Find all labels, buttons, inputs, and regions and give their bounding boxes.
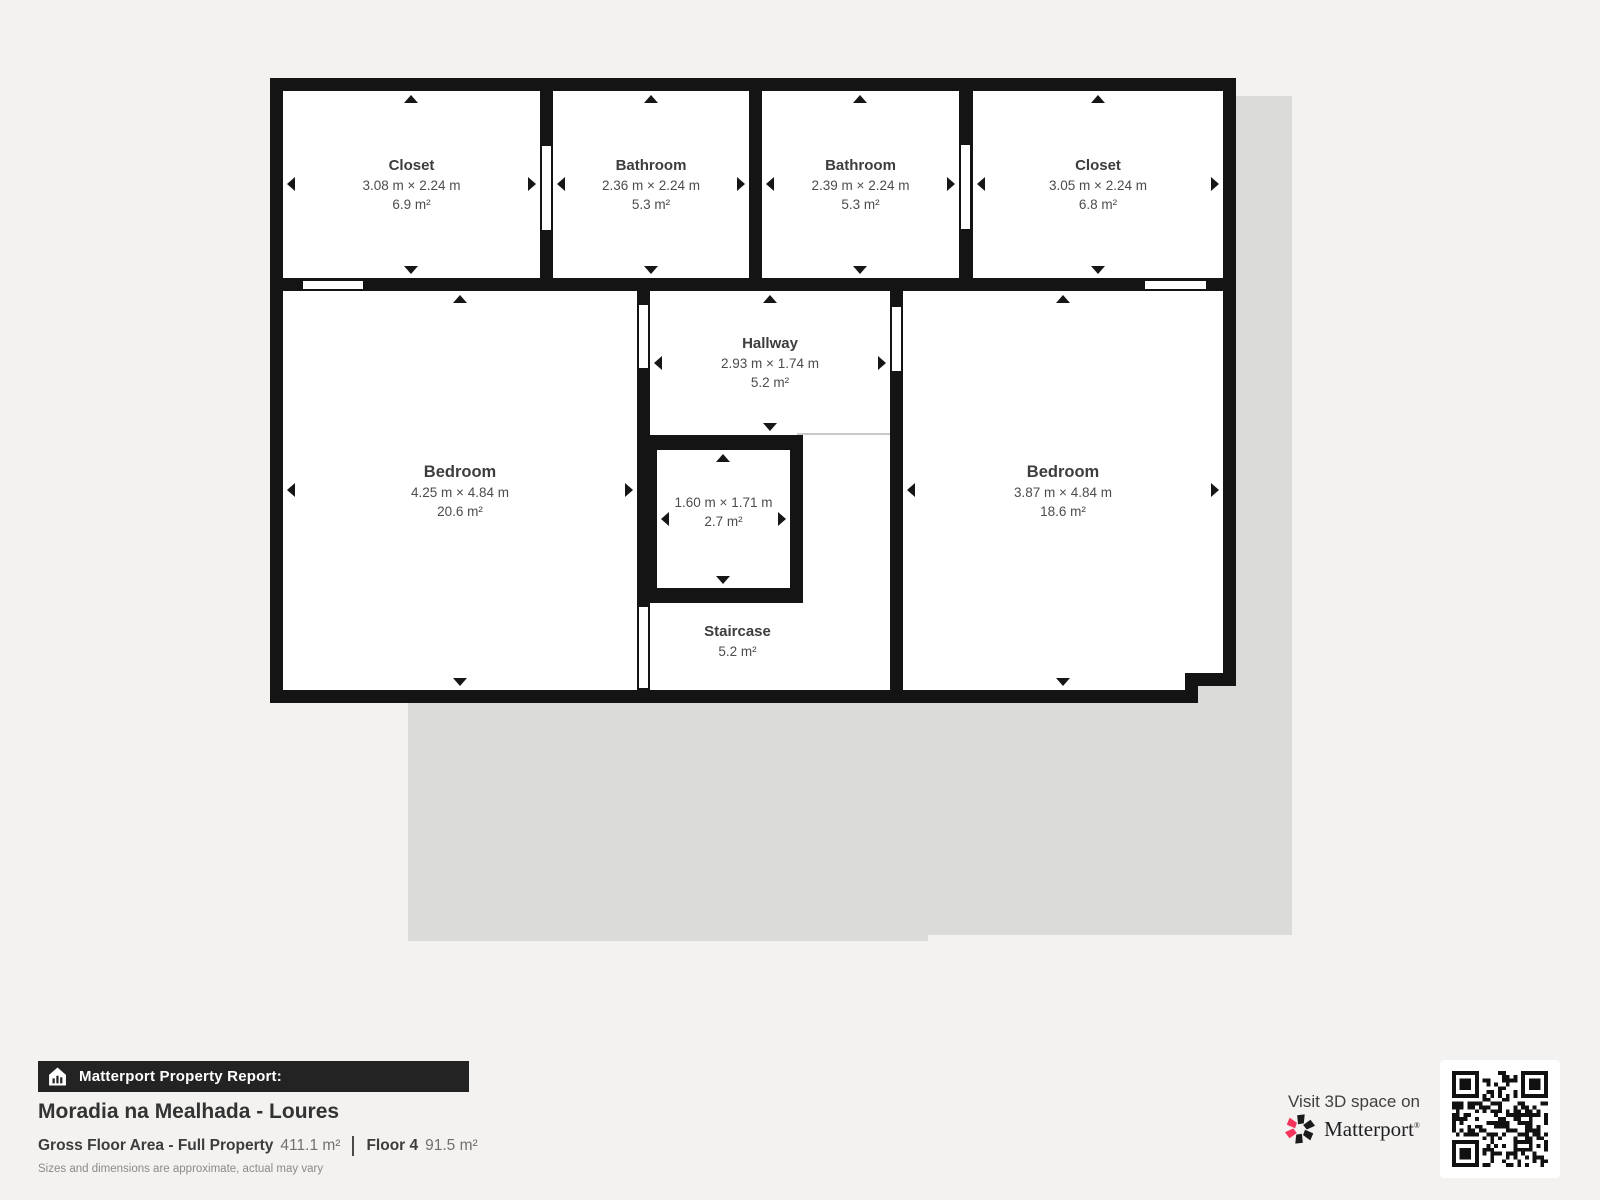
dimension-arrow-right-icon [878,356,886,370]
gross-floor-area-value: 411.1 m² [280,1137,340,1155]
property-title: Moradia na Mealhada - Loures [38,1100,339,1124]
dimension-arrow-left-icon [977,177,985,191]
dimension-arrow-left-icon [661,512,669,526]
dimension-arrow-right-icon [528,177,536,191]
dimension-arrow-up-icon [763,295,777,303]
report-banner-label: Matterport Property Report: [79,1068,282,1085]
lower-floor-outline-step [408,935,928,941]
door-opening [639,607,648,688]
dimension-arrow-up-icon [853,95,867,103]
dimension-arrow-left-icon [287,177,295,191]
wall [283,278,1223,291]
disclaimer-text: Sizes and dimensions are approximate, ac… [38,1163,323,1175]
dimension-arrow-right-icon [947,177,955,191]
wall [1223,78,1236,686]
dimension-arrow-down-icon [853,266,867,274]
dimension-arrow-left-icon [766,177,774,191]
trademark-mark: ® [1414,1121,1420,1130]
gross-floor-area-label: Gross Floor Area - Full Property [38,1137,273,1155]
dimension-arrow-up-icon [1056,295,1070,303]
dimension-arrow-right-icon [778,512,786,526]
dimension-arrow-up-icon [404,95,418,103]
dimension-arrow-down-icon [716,576,730,584]
report-banner: Matterport Property Report: [38,1061,469,1092]
room-floor-bathroom-1 [553,91,749,278]
dimension-arrow-down-icon [1056,678,1070,686]
dimension-arrow-left-icon [557,177,565,191]
matterport-pinwheel-icon [1283,1112,1317,1146]
door-opening [542,146,551,230]
matterport-wordmark: Matterport® [1324,1117,1420,1142]
wall [270,690,1198,703]
qr-code [1440,1060,1560,1178]
dimension-arrow-up-icon [644,95,658,103]
floor-label: Floor 4 [366,1137,418,1155]
dimension-arrow-up-icon [1091,95,1105,103]
property-report-page: Closet 3.08 m × 2.24 m 6.9 m² Bathroom 2… [0,0,1600,1200]
dimension-arrow-right-icon [1211,177,1219,191]
dimension-arrow-up-icon [453,295,467,303]
dimension-arrow-up-icon [716,454,730,462]
floor-area-stats: Gross Floor Area - Full Property 411.1 m… [38,1136,478,1156]
wall [1185,673,1198,703]
room-floor-bathroom-2 [762,91,959,278]
stats-divider [352,1136,354,1156]
door-opening [639,305,648,368]
room-floor-bedroom-left [283,291,637,690]
door-opening [892,307,901,371]
wall [749,91,762,278]
wall [270,78,1236,91]
room-floor-hallway [650,291,890,435]
room-floor-small-room [657,450,790,588]
dimension-arrow-down-icon [1091,266,1105,274]
door-opening [961,145,970,229]
matterport-logo: Matterport® [1276,1112,1420,1146]
dimension-arrow-left-icon [287,483,295,497]
dimension-arrow-right-icon [1211,483,1219,497]
room-floor-bedroom-right [903,291,1223,673]
room-floor-closet-1 [283,91,540,278]
dimension-arrow-down-icon [453,678,467,686]
dimension-arrow-down-icon [763,423,777,431]
door-opening [1145,281,1206,289]
floor-area-value: 91.5 m² [425,1137,478,1155]
wall [270,78,283,703]
dimension-arrow-left-icon [654,356,662,370]
dimension-arrow-down-icon [404,266,418,274]
dimension-arrow-left-icon [907,483,915,497]
room-floor-bedroom-right-notch [903,673,1185,690]
property-report-house-icon [48,1067,67,1086]
door-opening [303,281,363,289]
visit-3d-space-text: Visit 3D space on [1276,1092,1420,1112]
dimension-arrow-right-icon [737,177,745,191]
open-boundary-line [797,433,890,435]
room-floor-closet-2 [973,91,1223,278]
dimension-arrow-right-icon [625,483,633,497]
dimension-arrow-down-icon [644,266,658,274]
